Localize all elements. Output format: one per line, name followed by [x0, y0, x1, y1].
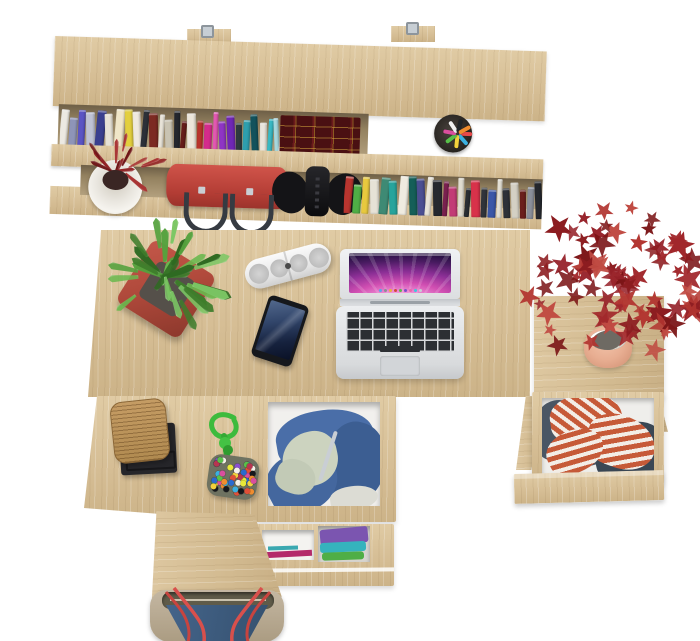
books-item: [449, 186, 458, 216]
leaves-item: [576, 210, 591, 225]
dockdots-item: [409, 289, 412, 292]
drawer-right-front-panel[interactable]: [514, 470, 665, 504]
leaves-item: [544, 330, 573, 359]
dockdots-item: [379, 289, 382, 292]
books-item: [397, 176, 409, 216]
books-item: [481, 187, 488, 217]
lower-drawer-slot-left: [262, 530, 314, 560]
speaker-grille: [307, 245, 331, 269]
leaves-item: [581, 333, 600, 352]
books-item: [242, 120, 251, 152]
books-item: [510, 182, 520, 218]
laptop-trackpad: [380, 356, 420, 376]
laptop-spacebar: [380, 346, 420, 352]
dockdots-item: [419, 289, 422, 292]
drawer-center-interior: [268, 402, 380, 506]
mount-hook-icon: [406, 22, 419, 35]
laptop: [336, 249, 464, 379]
dockdots-item: [384, 289, 387, 292]
beads-item: [238, 488, 245, 495]
wallpaper-menubar: [349, 253, 451, 256]
books-item: [203, 123, 212, 151]
leather-gold-trim: [279, 115, 360, 155]
laptop-body: [336, 306, 464, 379]
speaker-grille: [288, 252, 310, 274]
books-row-lower: [344, 171, 543, 219]
speaker-grille: [247, 262, 271, 286]
leather-book-set: [279, 115, 360, 155]
books-item: [503, 188, 511, 218]
leaves-item: [114, 139, 120, 164]
drawer-right-interior: [542, 398, 654, 476]
tote-straps: [144, 578, 290, 641]
books-item: [226, 115, 236, 151]
dockdots-item: [404, 289, 407, 292]
dockdots-item: [399, 289, 402, 292]
beads-item: [223, 485, 230, 492]
handbag-buckle: [246, 188, 253, 195]
books-item: [259, 123, 266, 153]
pen-cup: [434, 114, 473, 153]
leaves-item: [621, 198, 640, 217]
wallpaper-dock: [349, 289, 451, 292]
product-photo-desk-top-view: [0, 0, 700, 641]
woven-storage-box: [109, 397, 171, 465]
laptop-screen-wallpaper: [349, 253, 451, 293]
beads-item: [239, 480, 246, 487]
books-item: [352, 184, 362, 213]
leaves-item: [176, 230, 195, 257]
books-item: [251, 114, 260, 152]
hinge-slot: [370, 301, 430, 304]
pouch-beads: [205, 453, 260, 502]
pen-cup-pens: [434, 114, 473, 153]
leaves-item: [114, 293, 138, 314]
leaves-item: [563, 285, 588, 310]
open-drawer-center[interactable]: [256, 396, 396, 522]
books-item: [165, 120, 174, 150]
mount-hook-icon: [201, 25, 214, 38]
laptop-lid: [340, 249, 460, 299]
leaves-item: [533, 298, 564, 329]
wall-shelf-unit: [49, 36, 546, 229]
books-item: [187, 113, 196, 150]
books-item: [219, 121, 227, 151]
beads-item: [227, 464, 234, 471]
green-plant-leaves: [109, 224, 221, 328]
leaves-item: [596, 288, 617, 309]
leaves-item: [670, 263, 685, 278]
leaves-item: [542, 322, 558, 338]
wallpaper-rays: [349, 253, 451, 293]
books-item: [236, 123, 242, 152]
dockdots-item: [414, 289, 417, 292]
handbag-handle-right: [229, 194, 274, 236]
beads-item: [219, 470, 226, 477]
handbag-buckle: [198, 187, 205, 194]
books-item: [370, 179, 379, 214]
leaves-item: [169, 218, 181, 244]
laptop-hinge: [340, 299, 460, 306]
dockdots-item: [389, 289, 392, 292]
lower-drawer-slot-right: [318, 526, 370, 562]
leaves-item: [107, 273, 138, 284]
beads-item: [233, 467, 240, 474]
books-item: [433, 180, 442, 216]
books-item: [197, 121, 204, 151]
green-plant: [103, 224, 225, 336]
books-item: [471, 180, 480, 217]
leaves-item: [535, 278, 554, 297]
folded-clothes: [322, 551, 364, 560]
books-item: [487, 190, 496, 218]
beaded-pouch: [205, 453, 260, 502]
leaves-item: [594, 201, 614, 221]
dockdots-item: [394, 289, 397, 292]
maple-plant: [522, 196, 700, 372]
folded-strip: [264, 550, 312, 559]
tote-bag: [144, 578, 290, 641]
beads-item: [250, 477, 257, 484]
books-item: [361, 177, 370, 214]
beads-item: [246, 463, 253, 470]
